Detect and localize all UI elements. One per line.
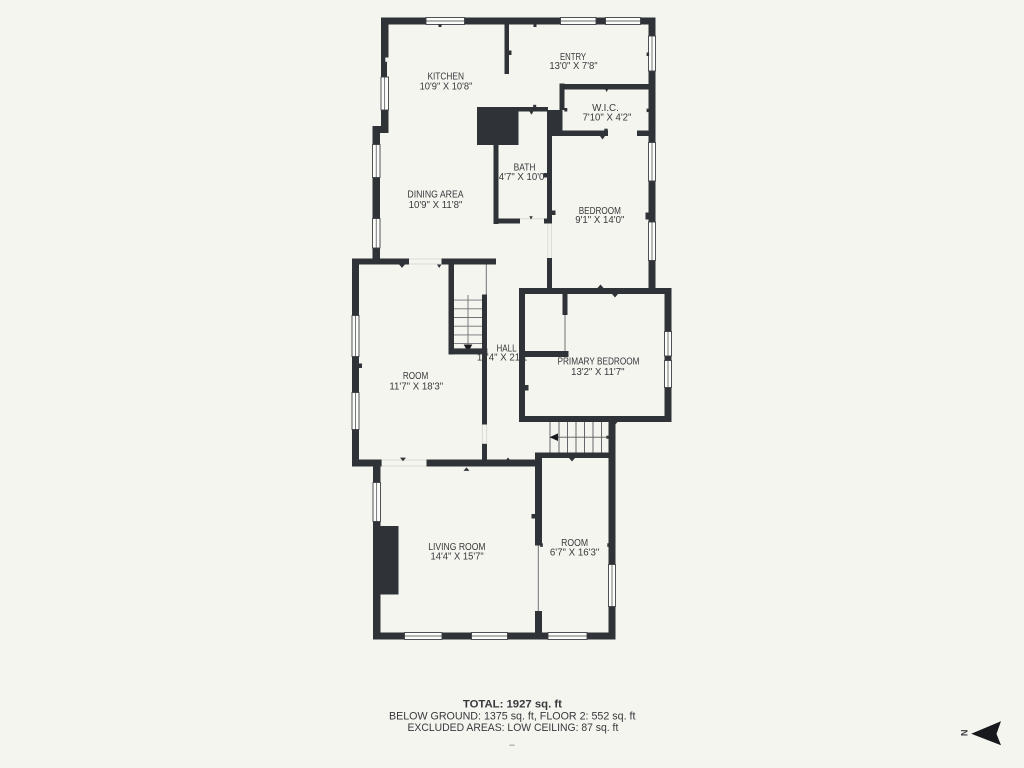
svg-text:BELOW GROUND: 1375 sq. ft, FLO: BELOW GROUND: 1375 sq. ft, FLOOR 2: 552 … — [389, 710, 636, 722]
svg-text:BATH: BATH — [514, 162, 536, 173]
svg-text:11'7" X 18'3": 11'7" X 18'3" — [389, 381, 443, 392]
svg-text:14'4" X 15'7": 14'4" X 15'7" — [430, 551, 483, 562]
svg-text:KITCHEN: KITCHEN — [427, 71, 464, 82]
svg-text:4'7" X 10'0": 4'7" X 10'0" — [499, 172, 549, 183]
svg-text:PRIMARY BEDROOM: PRIMARY BEDROOM — [557, 356, 639, 367]
svg-text:TOTAL: 1927 sq. ft: TOTAL: 1927 sq. ft — [463, 699, 562, 711]
svg-text:N: N — [959, 729, 969, 736]
svg-text:9'1" X 14'0": 9'1" X 14'0" — [575, 215, 625, 226]
svg-text:10'9" X 11'8": 10'9" X 11'8" — [409, 200, 463, 211]
svg-text:ROOM: ROOM — [561, 537, 588, 548]
svg-text:DINING AREA: DINING AREA — [407, 189, 464, 200]
svg-text:EXCLUDED AREAS: LOW CEILING: 8: EXCLUDED AREAS: LOW CEILING: 87 sq. ft — [407, 722, 618, 734]
svg-text:7'10" X 4'2": 7'10" X 4'2" — [583, 112, 632, 123]
svg-text:6'7" X 16'3": 6'7" X 16'3" — [550, 548, 600, 559]
svg-text:10'9" X 10'8": 10'9" X 10'8" — [420, 81, 473, 92]
svg-text:13'2" X 11'7": 13'2" X 11'7" — [571, 367, 625, 378]
svg-text:ROOM: ROOM — [403, 370, 428, 381]
svg-text:13'0" X 7'8": 13'0" X 7'8" — [549, 61, 598, 72]
